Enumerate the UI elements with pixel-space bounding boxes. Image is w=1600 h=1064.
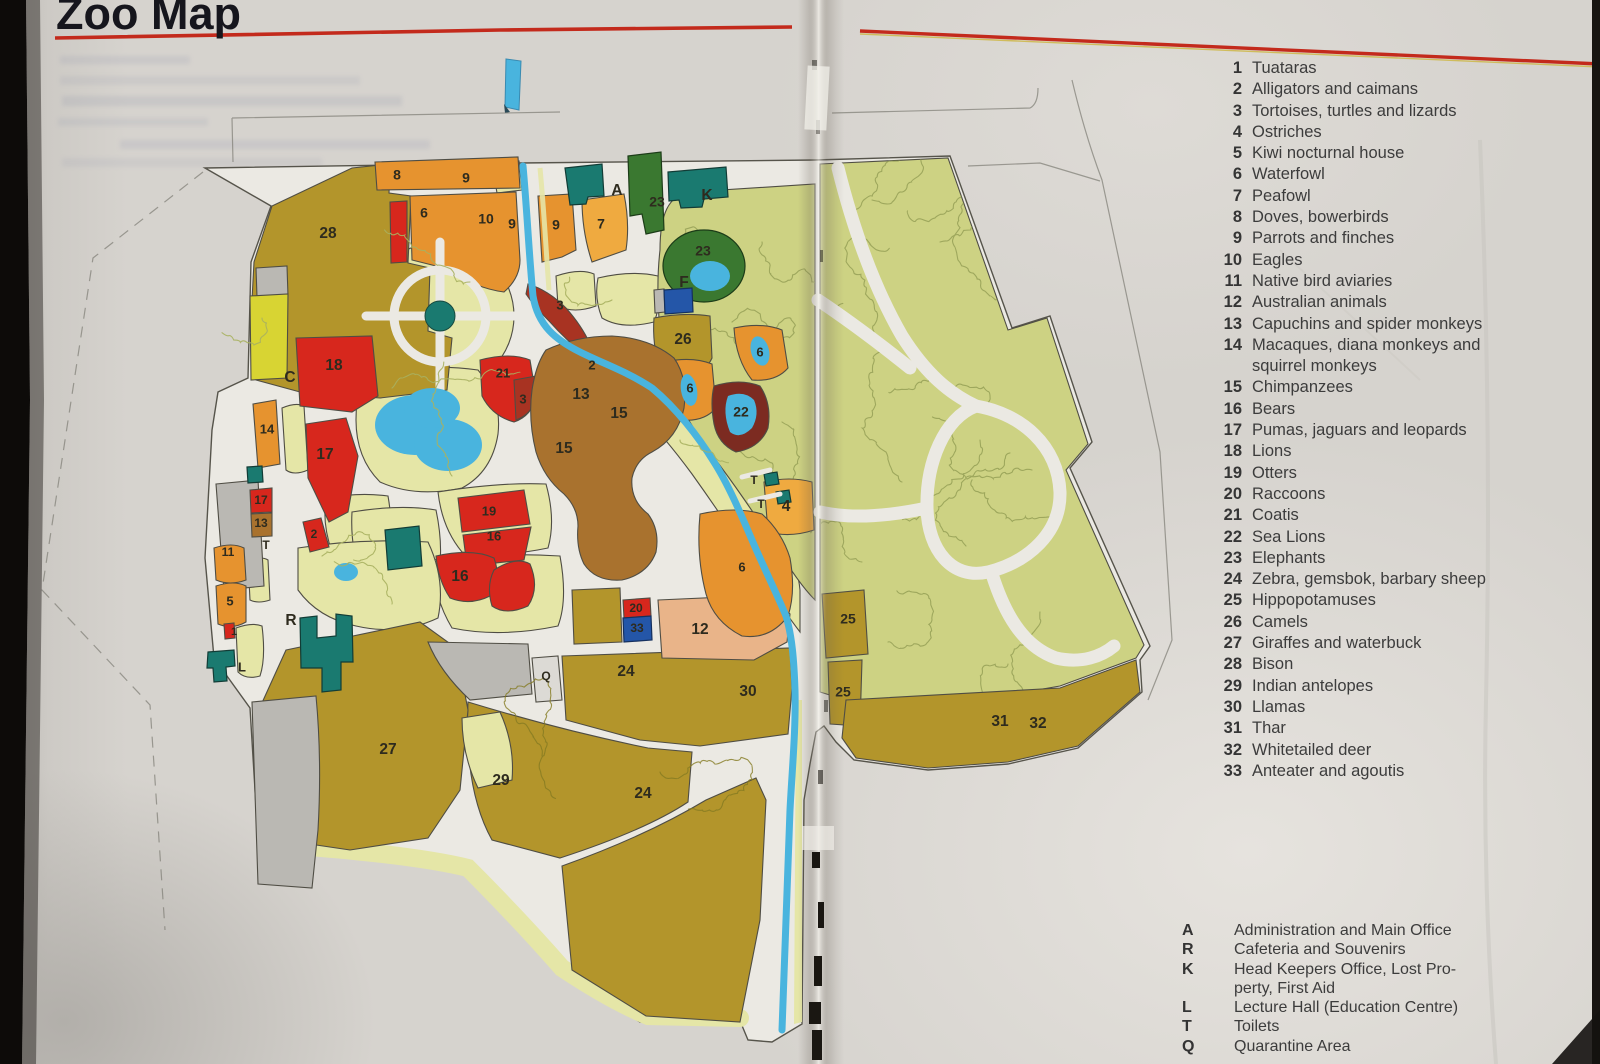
show-through-text bbox=[58, 56, 430, 167]
map-marker: 27 bbox=[379, 741, 396, 758]
legend-item: 1Tuataras bbox=[1212, 58, 1584, 79]
facility-item: LLecture Hall (Education Centre) bbox=[1182, 998, 1582, 1017]
map-marker: 6 bbox=[738, 559, 745, 574]
map-marker: 23 bbox=[649, 194, 665, 210]
legend-item: 14Macaques, diana monkeys and squirrel m… bbox=[1212, 335, 1584, 378]
map-marker: C bbox=[284, 369, 295, 386]
legend-item: 3Tortoises, turtles and lizards bbox=[1212, 101, 1584, 122]
legend-item: 5Kiwi nocturnal house bbox=[1212, 143, 1584, 164]
map-marker: 1 bbox=[231, 626, 237, 638]
legend-item: 26Camels bbox=[1212, 612, 1584, 633]
map-marker: 2 bbox=[588, 357, 595, 372]
map-marker: 17 bbox=[316, 446, 333, 463]
map-marker: 10 bbox=[478, 211, 494, 227]
map-marker: 9 bbox=[508, 216, 516, 232]
map-marker: 15 bbox=[610, 405, 628, 422]
map-marker: 17 bbox=[254, 493, 268, 507]
map-marker: 31 bbox=[991, 713, 1009, 730]
map-marker: 23 bbox=[695, 243, 711, 259]
legend-item: 15Chimpanzees bbox=[1212, 377, 1584, 398]
map-marker: 6 bbox=[420, 205, 428, 221]
legend-item: 25Hippopotamuses bbox=[1212, 590, 1584, 611]
map-marker: 18 bbox=[325, 357, 343, 374]
legend-item: 23Elephants bbox=[1212, 548, 1584, 569]
legend-item: 30Llamas bbox=[1212, 697, 1584, 718]
legend-item: 31Thar bbox=[1212, 718, 1584, 739]
map-marker: 33 bbox=[630, 621, 644, 635]
map-marker: 6 bbox=[756, 344, 763, 359]
map-marker: 2 bbox=[311, 527, 318, 541]
legend-item: 12Australian animals bbox=[1212, 292, 1584, 313]
map-marker: 20 bbox=[629, 601, 643, 615]
map-marker: 11 bbox=[222, 545, 235, 559]
map-marker: 15 bbox=[555, 440, 573, 457]
map-marker: 28 bbox=[319, 225, 337, 242]
map-marker: 12 bbox=[691, 621, 708, 638]
map-marker: 6 bbox=[686, 380, 693, 395]
page-title: Zoo Map bbox=[56, 0, 241, 40]
map-marker: 24 bbox=[617, 663, 635, 680]
legend-item: 19Otters bbox=[1212, 463, 1584, 484]
map-marker: 14 bbox=[260, 421, 275, 436]
map-marker: 13 bbox=[254, 516, 268, 530]
map-marker: 21 bbox=[496, 365, 510, 380]
legend-item: 13Capuchins and spider monkeys bbox=[1212, 314, 1584, 335]
map-marker: T bbox=[757, 497, 765, 511]
map-marker: 7 bbox=[597, 216, 605, 232]
facility-item: KHead Keepers Office, Lost Pro- perty, F… bbox=[1182, 960, 1582, 999]
map-marker: L bbox=[238, 659, 246, 674]
map-marker: T bbox=[262, 538, 270, 552]
map-marker: 3 bbox=[556, 297, 563, 312]
map-marker: 26 bbox=[674, 331, 692, 348]
stream-source-mark bbox=[505, 59, 521, 110]
map-marker: 29 bbox=[492, 772, 510, 789]
legend-item: 32Whitetailed deer bbox=[1212, 740, 1584, 761]
legend-item: 22Sea Lions bbox=[1212, 527, 1584, 548]
legend-item: 8Doves, bowerbirds bbox=[1212, 207, 1584, 228]
animal-legend-list: 1Tuataras2Alligators and caimans3Tortois… bbox=[1212, 58, 1584, 782]
map-marker: Q bbox=[541, 669, 550, 683]
facility-item: TToilets bbox=[1182, 1017, 1582, 1036]
map-marker: R bbox=[285, 612, 296, 629]
map-marker: 9 bbox=[552, 217, 560, 233]
zoo-map-brochure-photo: 288961099723AK23F2663221318C141713151562… bbox=[0, 0, 1600, 1064]
legend-item: 4Ostriches bbox=[1212, 122, 1584, 143]
facility-item: RCafeteria and Souvenirs bbox=[1182, 940, 1582, 959]
legend-item: 10Eagles bbox=[1212, 250, 1584, 271]
legend-item: 21Coatis bbox=[1212, 505, 1584, 526]
map-marker: 16 bbox=[487, 528, 501, 543]
map-marker: 32 bbox=[1029, 715, 1046, 732]
legend-item: 29Indian antelopes bbox=[1212, 676, 1584, 697]
map-marker: A bbox=[611, 182, 622, 199]
legend-item: 11Native bird aviaries bbox=[1212, 271, 1584, 292]
legend-item: 18Lions bbox=[1212, 441, 1584, 462]
map-marker: 9 bbox=[462, 170, 470, 186]
facility-item: QQuarantine Area bbox=[1182, 1037, 1582, 1056]
map-marker: T bbox=[750, 473, 758, 487]
building-F bbox=[664, 288, 693, 314]
facilities-legend: AAdministration and Main OfficeRCafeteri… bbox=[1182, 921, 1582, 1056]
map-marker: 22 bbox=[733, 404, 749, 420]
legend-item: 6Waterfowl bbox=[1212, 164, 1584, 185]
legend-item: 2Alligators and caimans bbox=[1212, 79, 1584, 100]
map-marker: 30 bbox=[739, 683, 756, 700]
legend-item: 20Raccoons bbox=[1212, 484, 1584, 505]
legend-item: 28Bison bbox=[1212, 654, 1584, 675]
facilities-legend-list: AAdministration and Main OfficeRCafeteri… bbox=[1182, 921, 1582, 1056]
facility-item: AAdministration and Main Office bbox=[1182, 921, 1582, 940]
map-marker: 8 bbox=[393, 167, 401, 183]
legend-item: 27Giraffes and waterbuck bbox=[1212, 633, 1584, 654]
legend-item: 24Zebra, gemsbok, barbary sheep bbox=[1212, 569, 1584, 590]
map-marker: 19 bbox=[482, 503, 496, 518]
animal-legend: 1Tuataras2Alligators and caimans3Tortois… bbox=[1212, 58, 1584, 782]
map-marker: 4 bbox=[782, 498, 791, 515]
map-marker: 13 bbox=[572, 386, 590, 403]
map-marker: 16 bbox=[451, 568, 469, 585]
map-marker: K bbox=[701, 187, 713, 204]
legend-item: 9Parrots and finches bbox=[1212, 228, 1584, 249]
legend-item: 7Peafowl bbox=[1212, 186, 1584, 207]
map-marker: 5 bbox=[226, 593, 233, 608]
map-marker: 3 bbox=[519, 391, 526, 406]
legend-item: 16Bears bbox=[1212, 399, 1584, 420]
map-marker: 24 bbox=[634, 785, 652, 802]
map-marker: F bbox=[679, 274, 688, 291]
legend-item: 17Pumas, jaguars and leopards bbox=[1212, 420, 1584, 441]
centre-fold bbox=[798, 0, 844, 1064]
legend-item: 33Anteater and agoutis bbox=[1212, 761, 1584, 782]
